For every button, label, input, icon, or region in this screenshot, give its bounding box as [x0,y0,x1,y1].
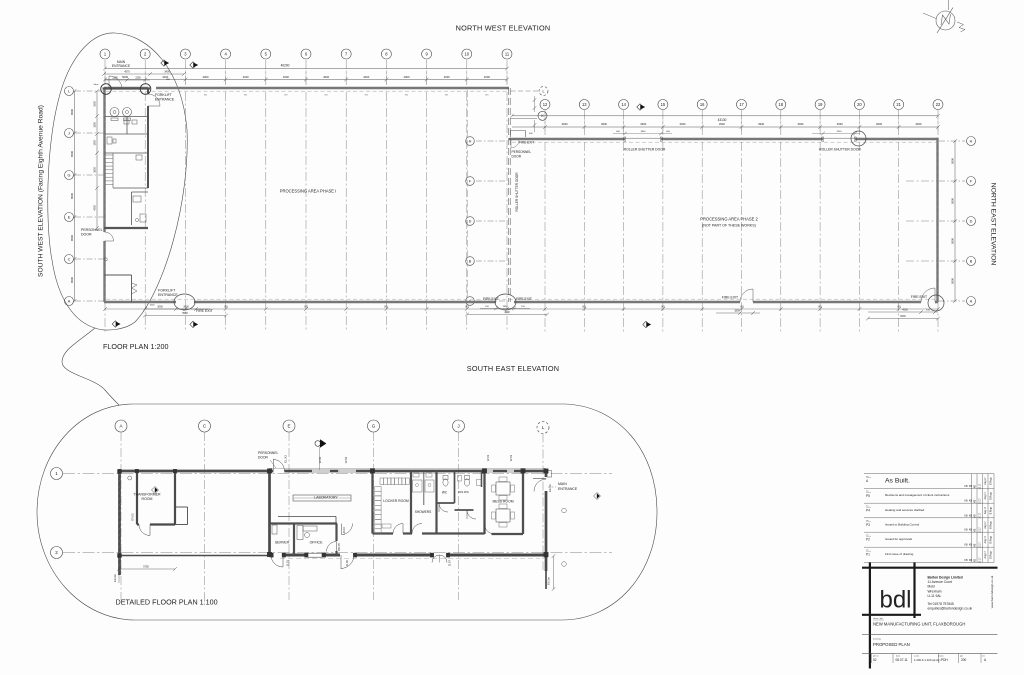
svg-text:D.07: D.07 [448,560,452,566]
svg-text:10.17: 10.17 [980,557,982,563]
svg-text:KB: KB [975,485,977,489]
svg-text:LD.03: LD.03 [342,527,346,535]
svg-text:12: 12 [543,102,548,107]
svg-text:Aug 17: Aug 17 [984,535,987,543]
svg-text:K: K [541,114,544,118]
svg-text:P3: P3 [866,523,870,527]
svg-text:D.01: D.01 [286,560,290,566]
svg-text:52: 52 [873,658,877,662]
svg-text:WC: WC [442,491,448,495]
svg-text:Heating and services clarified: Heating and services clarified. [885,508,925,512]
svg-text:KB: KB [969,500,973,503]
svg-text:3930: 3930 [680,122,686,126]
svg-text:P2: P2 [866,538,870,542]
svg-text:FORKLIFT: FORKLIFT [155,93,173,97]
svg-text:KB: KB [969,544,973,547]
svg-text:1:200 & 1:100 (at A1): 1:200 & 1:100 (at A1) [914,658,941,662]
svg-text:PROPOSED PLAN: PROPOSED PLAN [873,642,910,647]
svg-text:KB: KB [964,500,968,503]
svg-text:Barton Design Limited: Barton Design Limited [928,576,963,580]
svg-text:5500: 5500 [182,312,188,315]
svg-text:ENTRANCE: ENTRANCE [558,487,578,491]
svg-text:8500: 8500 [70,109,74,115]
svg-text:SOUTH WEST ELEVATION (Facing E: SOUTH WEST ELEVATION (Facing Eighth Aven… [38,105,45,277]
svg-text:TRANSFORMER: TRANSFORMER [133,493,161,497]
svg-text:W.02: W.02 [318,456,322,463]
svg-text:E: E [287,424,290,429]
svg-text:First issue of drawing: First issue of drawing [885,552,914,556]
svg-text:EX.1m: EX.1m [548,484,552,492]
svg-text:14: 14 [621,102,626,107]
svg-text:4000: 4000 [504,311,510,314]
svg-text:3400: 3400 [164,70,170,73]
svg-text:L: L [542,89,544,93]
svg-text:1: 1 [55,471,58,476]
svg-text:Wrexham: Wrexham [928,589,942,593]
svg-text:10.17: 10.17 [980,527,982,533]
svg-text:FIRE EXIT: FIRE EXIT [519,140,534,144]
svg-text:ENTRANCE: ENTRANCE [112,64,131,68]
svg-text:8500: 8500 [70,235,74,241]
svg-text:KB: KB [964,544,968,547]
svg-text:KB: KB [964,559,968,562]
svg-text:KB: KB [969,485,973,488]
svg-text:C: C [68,257,71,261]
svg-text:W.02: W.02 [344,456,348,463]
svg-text:D: D [469,219,472,223]
svg-text:PERSONNEL: PERSONNEL [81,228,103,232]
svg-text:B.Regs: B.Regs [991,520,993,528]
svg-text:10.17: 10.17 [980,542,982,548]
svg-text:P5: P5 [866,494,870,498]
svg-text:FIRE EXIT: FIRE EXIT [483,297,499,301]
svg-text:4000: 4000 [484,75,490,79]
svg-text:PROCESSING AREA PHASE I: PROCESSING AREA PHASE I [280,189,336,194]
svg-text:EL.X3: EL.X3 [284,455,288,463]
svg-text:KB: KB [975,543,977,547]
svg-text:D.06: D.06 [345,560,349,566]
svg-text:17: 17 [739,102,744,107]
svg-text:3500: 3500 [94,167,97,173]
svg-text:KB: KB [975,528,977,532]
svg-text:NEW MANUFACTURING UNIT, FLAXBO: NEW MANUFACTURING UNIT, FLAXBOROUGH [873,622,965,627]
svg-text:Issued for approvals: Issued for approvals [885,537,913,541]
svg-text:LOCKER ROOM: LOCKER ROOM [383,499,409,503]
svg-text:8230: 8230 [900,315,906,318]
svg-text:10: 10 [465,51,470,56]
svg-text:5000: 5000 [951,278,955,284]
svg-text:2: 2 [55,550,58,555]
svg-text:PROCESSING AREA PHASE 2: PROCESSING AREA PHASE 2 [700,217,758,222]
svg-text:J: J [68,131,70,135]
svg-text:www.bartondesign.co.uk: www.bartondesign.co.uk [990,575,994,608]
svg-text:OFFICE: OFFICE [310,540,323,544]
svg-text:4000: 4000 [203,75,209,79]
svg-text:KB: KB [969,559,973,562]
svg-text:P4: P4 [866,509,870,513]
svg-text:SHOWERS: SHOWERS [415,510,431,514]
svg-text:ROLLER SHUTTER DOOR: ROLLER SHUTTER DOOR [819,148,861,152]
svg-text:MAIN: MAIN [558,482,567,486]
svg-text:10.17: 10.17 [980,483,982,489]
svg-text:5000: 5000 [122,75,128,79]
svg-text:43130: 43130 [718,118,727,122]
svg-text:3930: 3930 [719,122,725,126]
svg-text:NORTH EAST ELEVATION: NORTH EAST ELEVATION [990,183,997,266]
svg-text:1900: 1900 [94,140,97,146]
svg-text:FORKLIFT: FORKLIFT [158,289,176,293]
svg-text:11 Avenue Court: 11 Avenue Court [928,580,952,584]
svg-text:P1: P1 [866,553,870,557]
svg-text:20: 20 [857,102,862,107]
svg-text:8500: 8500 [70,193,74,199]
svg-text:PERSONNEL: PERSONNEL [258,451,279,455]
svg-text:PERSONNEL: PERSONNEL [512,150,532,154]
svg-text:10.17: 10.17 [980,512,982,518]
svg-text:(NOT PART OF THESE WORKS): (NOT PART OF THESE WORKS) [702,224,756,228]
svg-text:5000: 5000 [951,198,955,204]
svg-text:5000: 5000 [951,158,955,164]
svg-text:ROLLER SHUTTER DOOR: ROLLER SHUTTER DOOR [624,148,666,152]
svg-text:4000: 4000 [283,75,289,79]
svg-text:18: 18 [779,102,784,107]
svg-text:KB: KB [964,529,968,532]
svg-text:KB: KB [969,529,973,532]
svg-text:21: 21 [896,102,901,107]
svg-text:11: 11 [505,51,510,56]
svg-text:200: 200 [961,658,967,662]
svg-text:DIS.WC: DIS.WC [458,490,470,494]
svg-text:3930: 3930 [562,122,568,126]
svg-text:BD.05: BD.05 [337,543,341,551]
svg-text:8500: 8500 [70,151,74,157]
svg-text:G: G [68,173,71,177]
svg-text:SERVER: SERVER [275,540,290,544]
svg-text:A: A [970,299,973,303]
svg-text:EX.1m: EX.1m [547,577,551,585]
svg-text:KB: KB [975,499,977,503]
svg-text:As Built.: As Built. [885,478,910,485]
svg-text:Tel 01978 757845: Tel 01978 757845 [928,602,954,606]
svg-text:2000: 2000 [183,305,189,308]
svg-text:2250: 2250 [135,76,141,79]
svg-text:SOUTH EAST ELEVATION: SOUTH EAST ELEVATION [467,364,559,373]
svg-text:B.Regs: B.Regs [991,506,993,514]
svg-text:10.17: 10.17 [980,498,982,504]
svg-text:3000: 3000 [157,305,163,308]
svg-text:DOOR: DOOR [512,155,522,159]
svg-text:B.Regs: B.Regs [991,491,993,499]
svg-text:4000: 4000 [444,75,450,79]
svg-text:22: 22 [936,102,941,107]
svg-text:L: L [68,89,70,93]
svg-text:4500: 4500 [902,308,908,311]
svg-text:DETAILED FLOOR PLAN 1:100: DETAILED FLOOR PLAN 1:100 [116,598,218,607]
svg-text:ENTRANCE: ENTRANCE [155,98,175,102]
svg-text:LABORATORY: LABORATORY [314,495,338,499]
svg-text:Aug 17: Aug 17 [984,550,987,558]
svg-text:NORTH WEST ELEVATION: NORTH WEST ELEVATION [456,24,551,33]
svg-text:1800: 1800 [734,309,740,312]
svg-text:Aug 17: Aug 17 [984,477,987,485]
svg-text:4000: 4000 [323,75,329,79]
svg-text:drawn: drawn [938,654,945,657]
svg-text:3930: 3930 [915,122,921,126]
svg-text:4000: 4000 [363,75,369,79]
svg-text:D: D [970,219,973,223]
svg-text:J: J [457,424,459,429]
svg-text:KB: KB [964,485,968,488]
svg-text:brkw: brkw [94,83,99,86]
svg-text:E: E [68,215,71,219]
svg-text:drawing: drawing [873,638,881,641]
svg-text:2500: 2500 [94,101,97,107]
svg-text:A: A [68,299,71,303]
svg-text:ROLLER SHUTTER DOOR: ROLLER SHUTTER DOOR [515,172,519,212]
svg-text:3800: 3800 [641,131,647,133]
svg-text:1500: 1500 [150,305,156,307]
svg-text:4000: 4000 [94,205,97,211]
svg-text:3930: 3930 [876,122,882,126]
svg-text:W.01: W.01 [509,454,513,461]
svg-text:B: B [970,259,973,263]
svg-text:15: 15 [661,102,666,107]
svg-text:3930: 3930 [640,122,646,126]
svg-text:3930: 3930 [601,122,607,126]
svg-text:client / job: client / job [873,617,884,620]
svg-text:Aug 17: Aug 17 [984,506,987,514]
svg-text:L: L [542,425,545,430]
svg-text:4000: 4000 [404,75,410,79]
svg-text:DOOR: DOOR [81,233,92,237]
svg-text:5000: 5000 [951,238,955,244]
svg-text:3930: 3930 [758,122,764,126]
svg-text:FIRE EXIT: FIRE EXIT [516,297,532,301]
svg-text:EX.2m: EX.2m [113,574,117,582]
svg-text:DOOR: DOOR [258,456,269,460]
svg-text:3200: 3200 [837,131,843,133]
svg-text:PDH: PDH [941,658,948,662]
svg-text:1800: 1800 [503,306,509,308]
svg-text:ENTRANCE: ENTRANCE [158,293,178,297]
svg-text:KB: KB [975,514,977,518]
svg-text:3930: 3930 [797,122,803,126]
svg-text:Aug 17: Aug 17 [984,521,987,529]
svg-text:1800: 1800 [94,122,97,128]
svg-text:4000: 4000 [243,75,249,79]
svg-text:KB: KB [975,558,977,562]
svg-text:FIRE EXIT: FIRE EXIT [722,296,738,300]
svg-text:4570: 4570 [124,70,130,73]
svg-text:H: H [469,139,472,143]
svg-text:DY.02: DY.02 [131,513,135,521]
svg-text:bdl: bdl [879,587,911,614]
svg-text:5750: 5750 [143,565,149,568]
svg-text:B.Regs: B.Regs [991,550,993,558]
svg-text:enquiries@bartondesign.co.uk: enquiries@bartondesign.co.uk [928,607,973,611]
svg-text:FIRE EXIT: FIRE EXIT [196,309,214,313]
svg-text:40200: 40200 [281,64,290,68]
svg-text:13: 13 [582,102,587,107]
svg-text:LL11 9AL: LL11 9AL [928,594,942,598]
svg-text:16: 16 [700,102,705,107]
svg-text:B.Regs: B.Regs [991,476,993,484]
svg-text:Issued to Building Control: Issued to Building Control [885,522,920,526]
svg-text:W.01: W.01 [486,454,490,461]
svg-text:Aug 17: Aug 17 [984,491,987,499]
svg-text:Revisions and management of cl: Revisions and management of client instr… [885,493,950,497]
svg-text:FIRE EXIT: FIRE EXIT [911,295,927,299]
svg-text:FLOOR PLAN 1:200: FLOOR PLAN 1:200 [103,342,169,351]
svg-text:08.07.11: 08.07.11 [896,658,908,662]
svg-text:G: G [372,424,376,429]
svg-text:H: H [970,139,973,143]
svg-text:MESS ROOM: MESS ROOM [492,500,513,504]
svg-text:19: 19 [818,102,823,107]
svg-text:3930: 3930 [837,122,843,126]
svg-text:Mold: Mold [928,585,935,589]
svg-text:KB: KB [969,514,973,517]
svg-text:8500: 8500 [70,277,74,283]
svg-text:B.Regs: B.Regs [991,535,993,543]
svg-text:ROOM: ROOM [142,497,153,501]
svg-text:KB: KB [964,514,968,517]
